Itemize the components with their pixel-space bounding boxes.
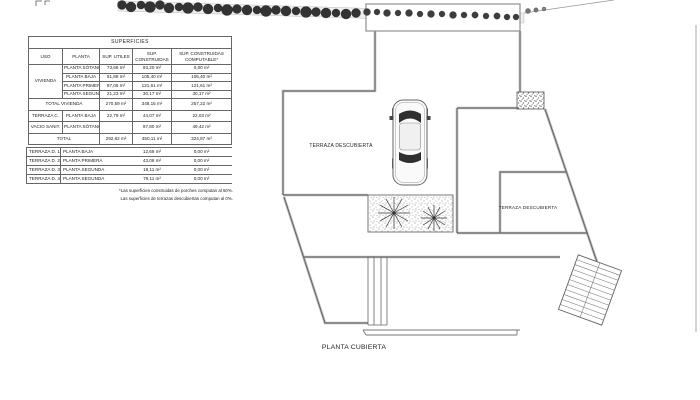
footnotes: *Las superficies construidas de porches … <box>28 187 233 203</box>
table-header-row: USO PLANTA SUP. UTILES SUP. CONSTRUIDAS … <box>29 49 232 65</box>
cell-construidas: 93,20 m² <box>133 65 172 74</box>
cell-utiles: 97,06 m² <box>100 82 133 91</box>
footnote-line: Las superficies de terrazas descubiertas… <box>28 195 233 203</box>
terrace-label-right: TERRAZA DESCUBIERTA <box>499 205 558 210</box>
cell-utiles: 81,88 m² <box>100 73 133 82</box>
cell-planta: PLANTA SÓTANO <box>63 122 100 134</box>
uso-vivienda: VIVIENDA <box>29 65 63 99</box>
cell-computable: 324,87 m² <box>172 133 232 145</box>
cell-computable: 22,03 m² <box>172 110 232 122</box>
plan-title: PLANTA CUBIERTA <box>322 344 386 351</box>
cell-computable: 0,00 m² <box>172 175 232 184</box>
total-vivienda-label: TOTAL VIVIENDA <box>29 99 100 111</box>
cell-construidas: 43,08 m² <box>133 157 172 166</box>
cell-uso: TERRAZA D. 2 <box>27 157 61 166</box>
car <box>390 100 431 185</box>
cell-utiles: 21,23 m² <box>100 90 133 99</box>
cell-planta: PLANTA SEGUNDA <box>61 175 133 184</box>
cell-construidas: 97,80 m² <box>133 122 172 134</box>
cell-planta: PLANTA BAJA <box>63 110 100 122</box>
drawing-sheet: TERRAZA DESCUBIERTA TERRAZA DESCUBIERTA … <box>0 0 700 400</box>
table-title: SUPERFICIES <box>29 37 232 49</box>
cell-computable: 0,00 m² <box>172 157 232 166</box>
staircase <box>558 255 621 325</box>
table-row: TERRAZA D. 4 PLANTA SEGUNDA 79,11 m² 0,0… <box>27 175 232 184</box>
table-row: VACIO SANIT. PLANTA SÓTANO 97,80 m² 49,4… <box>29 122 232 134</box>
col-header-planta: PLANTA <box>63 49 100 65</box>
surfaces-table: SUPERFICIES USO PLANTA SUP. UTILES SUP. … <box>28 36 232 145</box>
cell-utiles: 292,62 m² <box>100 133 133 145</box>
cell-construidas: 12,68 m² <box>133 148 172 157</box>
cell-computable: 0,00 m² <box>172 148 232 157</box>
lower-parapet <box>363 330 520 335</box>
col-header-uso: USO <box>29 49 63 65</box>
table-row: VIVIENDA PLANTA SÓTANO 73,68 m² 93,20 m²… <box>29 65 232 74</box>
cell-uso: VACIO SANIT. <box>29 122 63 134</box>
terrace-label-main: TERRAZA DESCUBIERTA <box>309 143 373 149</box>
cell-construidas: 450,11 m² <box>133 133 172 145</box>
terrazas-table: TERRAZA D. 1 PLANTA BAJA 12,68 m² 0,00 m… <box>26 147 232 184</box>
cell-utiles: 73,68 m² <box>100 65 133 74</box>
total-row: TOTAL 292,62 m² 450,11 m² 324,87 m² <box>29 133 232 145</box>
cell-computable: 121,61 m² <box>172 82 232 91</box>
col-header-construidas: SUP. CONSTRUIDAS <box>133 49 172 65</box>
cell-uso: TERRAZA C. <box>29 110 63 122</box>
cell-computable: 105,40 m² <box>172 73 232 82</box>
gravel-patio-square <box>517 92 544 109</box>
cell-construidas: 30,17 m² <box>133 90 172 99</box>
lower-wall-section <box>368 257 387 325</box>
table-row: TERRAZA D. 3 PLANTA SEGUNDA 18,11 m² 0,0… <box>27 166 232 175</box>
mirror-left <box>390 116 394 120</box>
table-row: TERRAZA D. 2 PLANTA PRIMERA 43,08 m² 0,0… <box>27 157 232 166</box>
total-vivienda-row: TOTAL VIVIENDA 270,59 m² 348,15 m² 257,2… <box>29 99 232 111</box>
cell-computable: 0,00 m² <box>172 166 232 175</box>
cell-utiles: 270,59 m² <box>100 99 133 111</box>
cell-utiles: 22,79 m² <box>100 110 133 122</box>
planter-bed <box>368 195 453 232</box>
cell-planta: PLANTA BAJA <box>63 73 100 82</box>
car-roof <box>400 123 421 150</box>
cell-planta: PLANTA SÓTANO <box>63 65 100 74</box>
cell-construidas: 348,15 m² <box>133 99 172 111</box>
footnote-line: *Las superficies construidas de porches … <box>28 187 233 195</box>
cell-utiles <box>100 122 133 134</box>
cell-construidas: 18,11 m² <box>133 166 172 175</box>
col-header-computable: SUP. CONSTRUIDAS COMPUTABLE* <box>172 49 232 65</box>
cell-planta: PLANTA SEGUNDA <box>63 90 100 99</box>
surfaces-table-block: SUPERFICIES USO PLANTA SUP. UTILES SUP. … <box>28 36 234 203</box>
cell-planta: PLANTA PRIMERA <box>61 157 133 166</box>
cell-construidas: 105,40 m² <box>133 73 172 82</box>
cell-planta: PLANTA SEGUNDA <box>61 166 133 175</box>
mirror-right <box>427 116 431 120</box>
corner-mark <box>36 1 50 6</box>
cell-computable: 30,17 m² <box>172 90 232 99</box>
table-row: TERRAZA D. 1 PLANTA BAJA 12,68 m² 0,00 m… <box>27 148 232 157</box>
cell-computable: 49,42 m² <box>172 122 232 134</box>
cell-uso: TERRAZA D. 1 <box>27 148 61 157</box>
cell-uso: TERRAZA D. 3 <box>27 166 61 175</box>
cell-planta: PLANTA PRIMERA <box>63 82 100 91</box>
table-row: TERRAZA C. PLANTA BAJA 22,79 m² 44,07 m²… <box>29 110 232 122</box>
cell-computable: 0,00 m² <box>172 65 232 74</box>
cell-construidas: 79,11 m² <box>133 175 172 184</box>
col-header-utiles: SUP. UTILES <box>100 49 133 65</box>
cell-uso: TERRAZA D. 4 <box>27 175 61 184</box>
building-outline <box>283 31 597 335</box>
cell-construidas: 44,07 m² <box>133 110 172 122</box>
cell-computable: 257,22 m² <box>172 99 232 111</box>
table-title-row: SUPERFICIES <box>29 37 232 49</box>
total-label: TOTAL <box>29 133 100 145</box>
cell-construidas: 121,61 m² <box>133 82 172 91</box>
tree-row <box>118 0 615 31</box>
cell-planta: PLANTA BAJA <box>61 148 133 157</box>
